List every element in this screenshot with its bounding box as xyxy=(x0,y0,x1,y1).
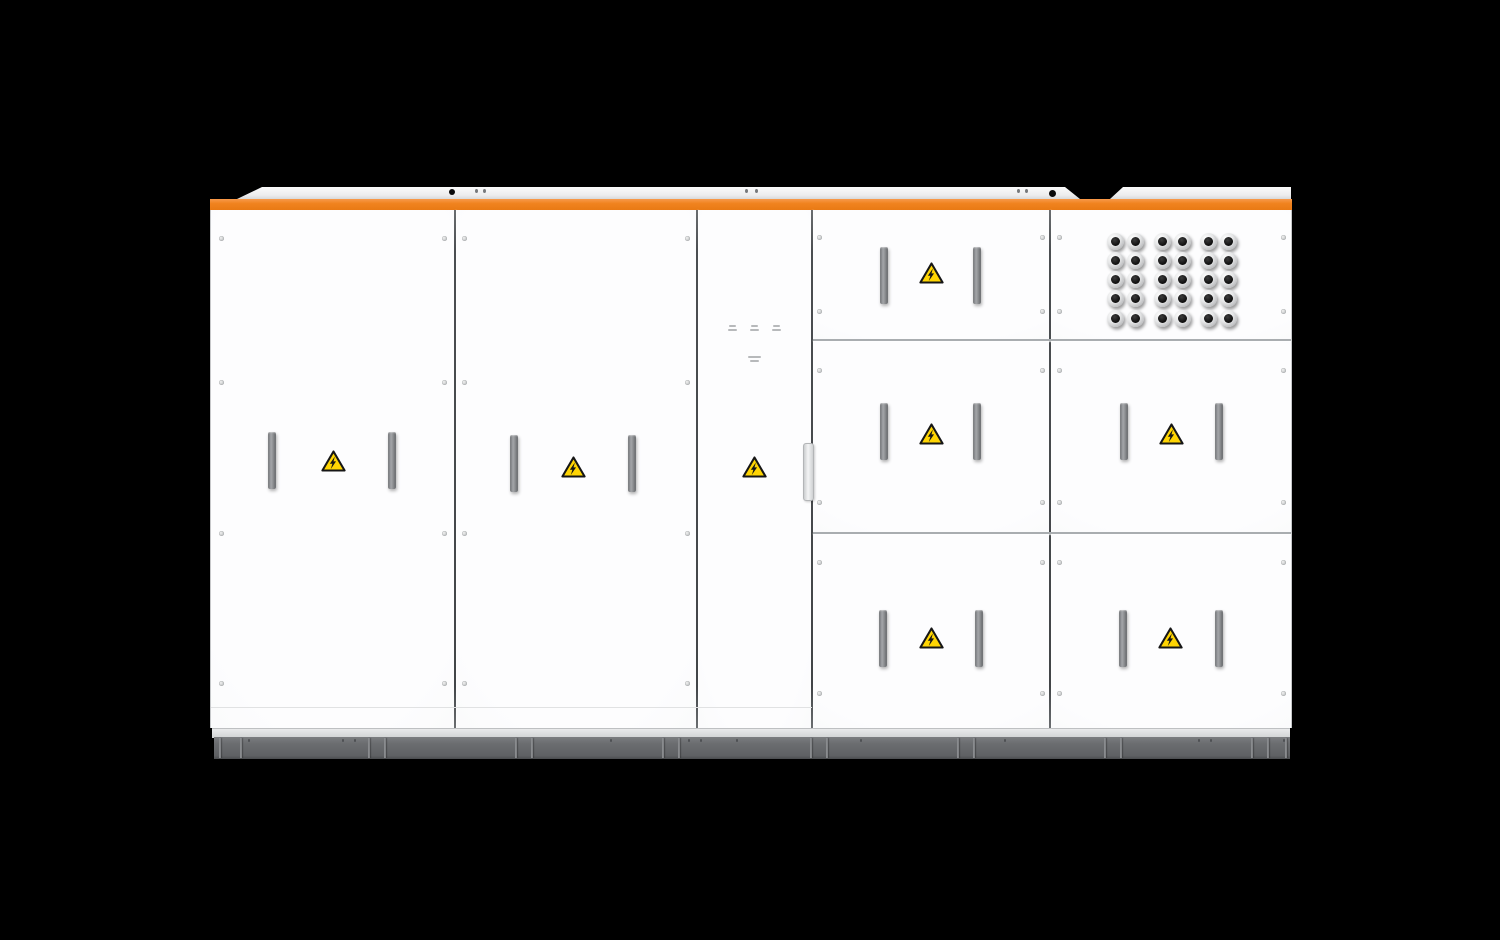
panel-screw xyxy=(685,380,690,385)
cable-gland xyxy=(1127,271,1144,288)
base-bolt xyxy=(688,739,690,742)
cabinet-roof-right-module xyxy=(1110,187,1291,199)
panel-screw xyxy=(1040,235,1045,240)
cable-gland xyxy=(1174,271,1191,288)
base-bolt xyxy=(610,739,612,742)
panel-seam-horizontal xyxy=(813,532,1291,534)
door-handle[interactable] xyxy=(510,435,518,492)
high-voltage-warning-icon xyxy=(1157,626,1184,650)
high-voltage-warning-icon xyxy=(320,449,347,473)
panel-screw xyxy=(817,235,822,240)
cable-gland xyxy=(1154,233,1171,250)
high-voltage-warning-icon xyxy=(741,455,768,479)
accent-stripe xyxy=(210,199,1292,210)
panel-screw xyxy=(442,531,447,536)
base-divider xyxy=(1104,738,1106,758)
base-divider xyxy=(531,738,533,758)
base-bolt xyxy=(860,739,862,742)
base-bolt xyxy=(700,739,702,742)
panel-screw xyxy=(1057,368,1062,373)
base-divider xyxy=(973,738,975,758)
cable-gland xyxy=(1200,252,1217,269)
panel-screw xyxy=(1057,235,1062,240)
panel-screw xyxy=(219,380,224,385)
cable-gland xyxy=(1127,252,1144,269)
cable-gland xyxy=(1154,310,1171,327)
panel-screw xyxy=(817,368,822,373)
door-handle[interactable] xyxy=(1215,403,1223,460)
base-divider xyxy=(219,738,221,758)
panel-screw xyxy=(442,681,447,686)
panel-screw xyxy=(1040,560,1045,565)
cable-gland xyxy=(1127,233,1144,250)
base-divider xyxy=(368,738,370,758)
cable-gland xyxy=(1107,310,1124,327)
panel-screw xyxy=(817,500,822,505)
roof-lifting-hole xyxy=(1049,190,1056,197)
door-handle[interactable] xyxy=(1120,403,1128,460)
indicator-label xyxy=(750,360,759,362)
panel-screw xyxy=(817,691,822,696)
door-handle[interactable] xyxy=(973,247,981,304)
cable-gland xyxy=(1154,252,1171,269)
panel-screw xyxy=(462,531,467,536)
high-voltage-warning-icon xyxy=(918,422,945,446)
base-divider xyxy=(826,738,828,758)
panel-screw xyxy=(1281,309,1286,314)
door-handle[interactable] xyxy=(268,432,276,489)
cable-gland xyxy=(1174,290,1191,307)
door-handle[interactable] xyxy=(973,403,981,460)
panel-screw xyxy=(685,236,690,241)
high-voltage-warning-icon xyxy=(560,455,587,479)
base-bolt xyxy=(342,739,344,742)
door-handle[interactable] xyxy=(1215,610,1223,667)
door-latch-handle[interactable] xyxy=(803,443,814,501)
high-voltage-warning-icon xyxy=(918,261,945,285)
door-handle[interactable] xyxy=(628,435,636,492)
base-bolt xyxy=(1283,739,1285,742)
cable-gland xyxy=(1220,290,1237,307)
roof-bolt-mark xyxy=(1025,189,1028,193)
cable-gland xyxy=(1220,233,1237,250)
panel-screw xyxy=(219,681,224,686)
base-bolt xyxy=(1210,739,1212,742)
door-seam-vertical xyxy=(696,210,698,728)
indicator-label xyxy=(748,356,761,358)
base-divider xyxy=(678,738,680,758)
cable-gland xyxy=(1220,310,1237,327)
indicator-label xyxy=(728,329,737,331)
cable-gland xyxy=(1127,290,1144,307)
cabinet-roof-main xyxy=(237,187,1080,199)
high-voltage-warning-icon xyxy=(918,626,945,650)
panel-screw xyxy=(1057,309,1062,314)
door-handle[interactable] xyxy=(879,610,887,667)
panel-screw xyxy=(442,236,447,241)
base-divider xyxy=(662,738,664,758)
panel-screw xyxy=(1281,235,1286,240)
panel-screw xyxy=(219,236,224,241)
panel-screw xyxy=(685,531,690,536)
high-voltage-warning-icon xyxy=(1158,422,1185,446)
cable-gland xyxy=(1220,252,1237,269)
cable-gland xyxy=(1154,290,1171,307)
bay-top-right[interactable] xyxy=(1051,210,1291,340)
cable-gland xyxy=(1107,271,1124,288)
cable-gland xyxy=(1107,290,1124,307)
panel-screw xyxy=(1057,560,1062,565)
cabinet-base xyxy=(214,737,1290,759)
cable-gland xyxy=(1174,252,1191,269)
panel-screw xyxy=(462,236,467,241)
base-bolt xyxy=(248,739,250,742)
indicator-label xyxy=(750,329,759,331)
base-divider xyxy=(515,738,517,758)
door-handle[interactable] xyxy=(880,247,888,304)
cable-gland xyxy=(1220,271,1237,288)
base-divider xyxy=(384,738,386,758)
panel-screw xyxy=(1040,368,1045,373)
cable-gland xyxy=(1107,233,1124,250)
base-divider xyxy=(810,738,812,758)
cable-gland xyxy=(1107,252,1124,269)
panel-screw xyxy=(1057,500,1062,505)
cable-gland xyxy=(1200,310,1217,327)
roof-bolt-mark xyxy=(1017,189,1020,193)
base-bolt xyxy=(736,739,738,742)
cable-gland xyxy=(1174,310,1191,327)
indicator-label xyxy=(729,325,736,327)
cable-gland xyxy=(1154,271,1171,288)
base-bolt xyxy=(354,739,356,742)
door-handle[interactable] xyxy=(880,403,888,460)
panel-screw xyxy=(1040,500,1045,505)
roof-bolt-mark xyxy=(755,189,758,193)
door-handle[interactable] xyxy=(388,432,396,489)
base-divider xyxy=(1251,738,1253,758)
base-divider xyxy=(1120,738,1122,758)
indicator-label xyxy=(772,329,781,331)
indicator-label xyxy=(751,325,758,327)
panel-screw xyxy=(1281,368,1286,373)
base-divider xyxy=(957,738,959,758)
panel-screw xyxy=(1281,500,1286,505)
roof-bolt-mark xyxy=(745,189,748,193)
panel-screw xyxy=(1281,691,1286,696)
panel-screw xyxy=(219,531,224,536)
cable-gland xyxy=(1200,290,1217,307)
panel-screw xyxy=(685,681,690,686)
base-bolt xyxy=(1198,739,1200,742)
door-handle[interactable] xyxy=(975,610,983,667)
product-render-stage: SUNGROW xyxy=(0,0,1500,940)
kick-plate-seam xyxy=(211,707,812,708)
door-seam-vertical xyxy=(454,210,456,728)
base-divider xyxy=(1285,738,1287,758)
panel-screw xyxy=(1040,309,1045,314)
cable-gland xyxy=(1200,233,1217,250)
panel-seam-horizontal xyxy=(813,339,1291,341)
door-handle[interactable] xyxy=(1119,610,1127,667)
panel-screw xyxy=(462,681,467,686)
cable-gland xyxy=(1127,310,1144,327)
panel-screw xyxy=(442,380,447,385)
roof-bolt-mark xyxy=(475,189,478,193)
panel-screw xyxy=(817,560,822,565)
roof-lifting-hole xyxy=(449,189,455,195)
base-bolt xyxy=(1004,739,1006,742)
base-divider xyxy=(240,738,242,758)
base-divider xyxy=(1267,738,1269,758)
door-seam-vertical xyxy=(1049,210,1051,728)
panel-screw xyxy=(1040,691,1045,696)
cable-gland xyxy=(1174,233,1191,250)
indicator-label xyxy=(773,325,780,327)
panel-screw xyxy=(817,309,822,314)
panel-screw xyxy=(1057,691,1062,696)
panel-screw xyxy=(462,380,467,385)
panel-screw xyxy=(1281,560,1286,565)
cable-gland xyxy=(1200,271,1217,288)
roof-bolt-mark xyxy=(483,189,486,193)
